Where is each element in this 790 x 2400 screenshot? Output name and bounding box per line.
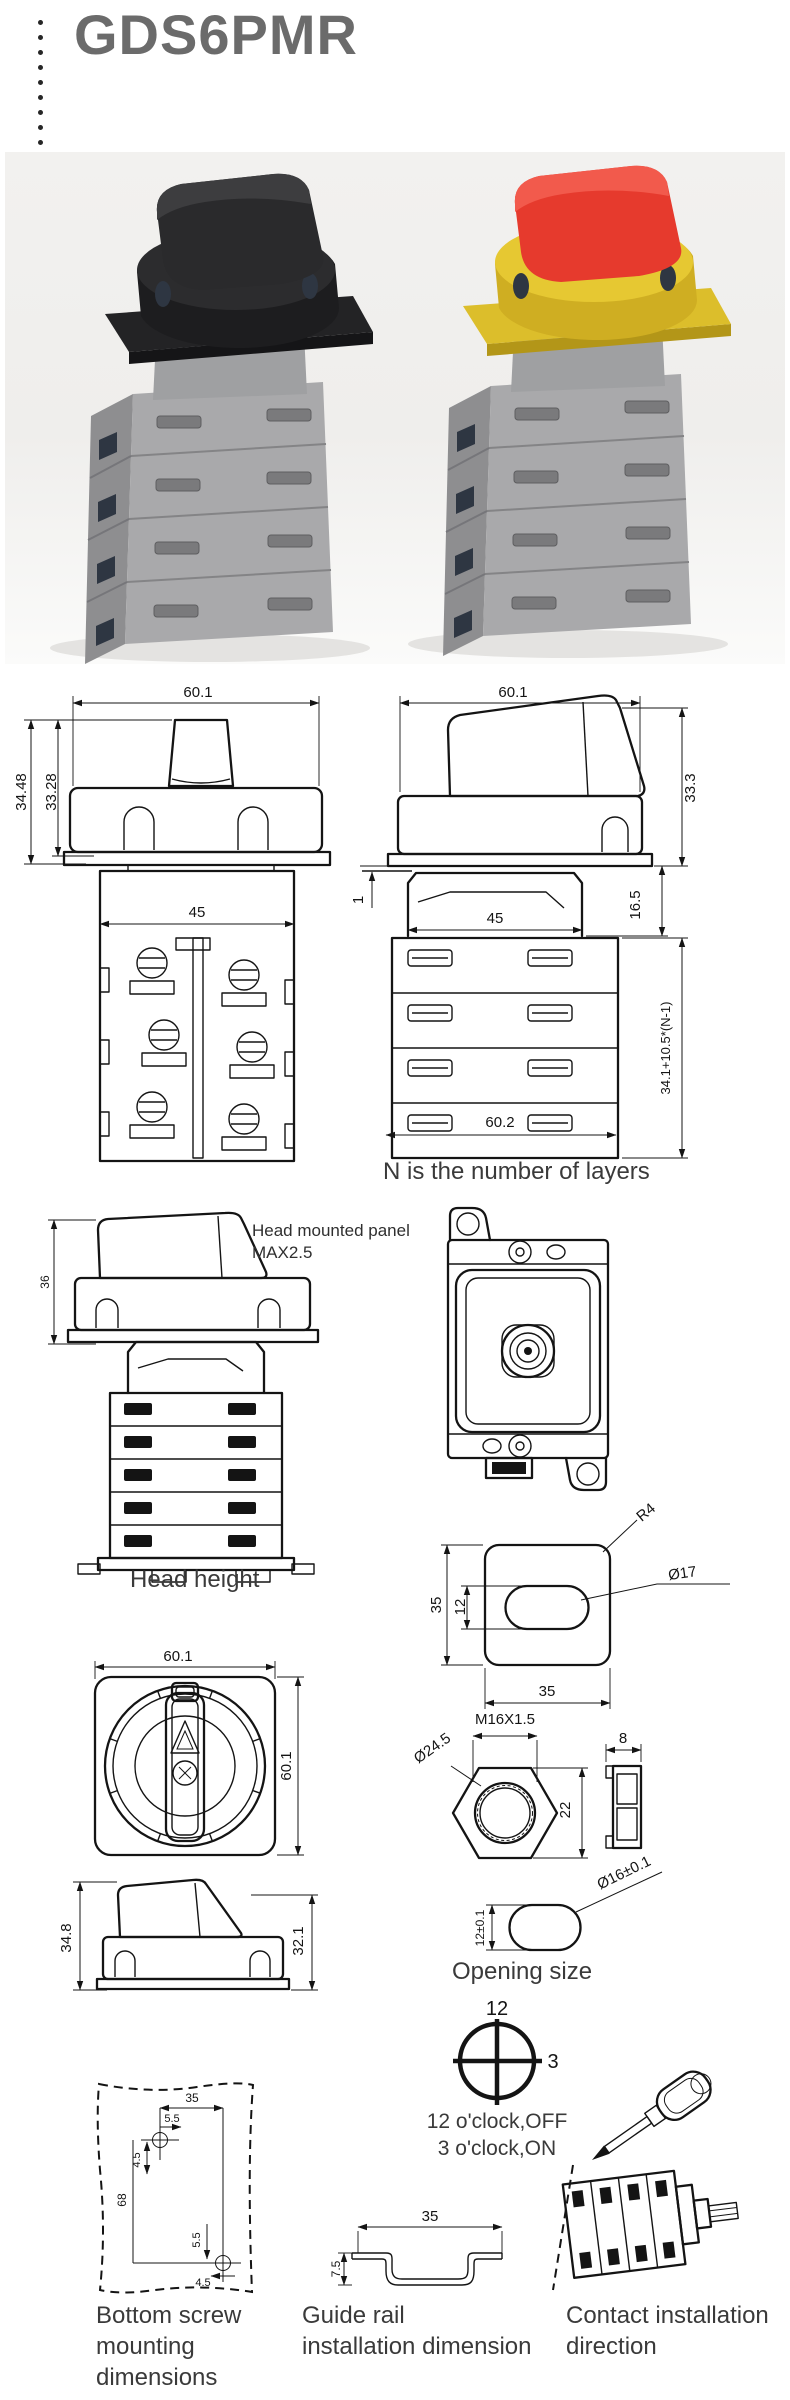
dim-nut-flats: 22 — [557, 1802, 574, 1819]
switch-body-side — [563, 2164, 743, 2278]
dim-hole-height: 12 — [452, 1599, 469, 1616]
dim-bs-35: 35 — [185, 2091, 199, 2105]
caption-contact: Contact installation direction — [566, 2300, 769, 2362]
dim-rail-width: 35 — [422, 2208, 439, 2225]
dim-bs-68: 68 — [115, 2193, 129, 2207]
caption-contact-line1: Contact installation — [566, 2300, 769, 2331]
dim-nut-thickness: 8 — [619, 1730, 627, 1747]
note-layers: N is the number of layers — [383, 1156, 650, 1187]
dim-opening-diameter: Ø16±0.1 — [594, 1855, 653, 1893]
figure-contact-installation — [540, 2058, 790, 2303]
caption-rail-line1: Guide rail — [302, 2300, 531, 2331]
dim-stack-formula: 34.1+10.5*(N-1) — [658, 1002, 673, 1095]
figure-top-view: 60.1 60.1 — [55, 1645, 345, 1880]
dim-head-side-left: 34.8 — [58, 1923, 75, 1952]
dim-head-side-right: 32.1 — [290, 1926, 307, 1955]
caption-bs-line1: Bottom screw — [96, 2300, 241, 2331]
figure-panel-cutout: 35 12 35 R4 Ø17 — [425, 1498, 755, 1718]
dim-front-h-inner: 33.28 — [43, 773, 60, 811]
switch-red-handle — [408, 166, 731, 658]
caption-bs-line2: mounting — [96, 2331, 241, 2362]
figure-front-view: 60.1 34.48 33.28 45 — [12, 668, 362, 1168]
dim-side-width: 60.1 — [498, 684, 527, 701]
dim-corner-radius: R4 — [633, 1500, 659, 1525]
dim-front-h-outer: 34.48 — [13, 773, 30, 811]
dim-top-height: 60.1 — [278, 1751, 295, 1780]
dim-front-width: 60.1 — [183, 684, 212, 701]
dim-neck-height: 16.5 — [627, 890, 644, 919]
figure-back-view — [428, 1202, 648, 1502]
figure-head-side: 34.8 32.1 — [45, 1865, 345, 2000]
figure-guide-rail: 35 7.5 — [330, 2195, 560, 2295]
dim-bs-top-offset: 5.5 — [164, 2113, 179, 2125]
caption-head-height: Head height — [130, 1564, 259, 1595]
dim-opening-height: 12±0.1 — [473, 1909, 487, 1946]
clock-label-12: 12 — [486, 1998, 508, 2020]
note-line-1: Head mounted panel — [252, 1220, 410, 1242]
caption-bs-line3: dimensions — [96, 2362, 241, 2393]
dim-thread: M16X1.5 — [475, 1711, 535, 1728]
dim-bs-left-offset: 4.5 — [131, 2152, 143, 2167]
product-photo-render — [5, 152, 785, 664]
caption-contact-line2: direction — [566, 2331, 769, 2362]
note-line-2: MAX2.5 — [252, 1242, 410, 1264]
product-photo — [5, 152, 785, 664]
page-title: GDS6PMR — [74, 2, 358, 67]
screwdriver-icon — [582, 2064, 719, 2174]
dim-head-height: 33.3 — [682, 773, 699, 802]
dim-nut-od: Ø24.5 — [411, 1730, 454, 1767]
caption-guide-rail: Guide rail installation dimension — [302, 2300, 531, 2362]
figure-bottom-screw: 35 68 5.5 4.5 5.5 4.5 — [85, 2070, 285, 2302]
switch-black-handle — [50, 174, 373, 664]
dim-base-width: 60.2 — [485, 1114, 514, 1131]
dim-side-body: 45 — [487, 910, 504, 927]
dim-panel-thickness: 1 — [350, 896, 367, 904]
dim-hole-diameter: Ø17 — [667, 1563, 697, 1584]
caption-opening-size: Opening size — [452, 1956, 592, 1987]
dim-top-width: 60.1 — [163, 1648, 192, 1665]
dim-bs-bottom-edge: 4.5 — [195, 2277, 210, 2289]
figure-nut: M16X1.5 Ø24.5 22 8 — [395, 1698, 695, 1873]
datasheet-page: GDS6PMR — [0, 0, 790, 2400]
decorative-dots — [38, 20, 43, 145]
figure-opening-size: 12±0.1 Ø16±0.1 — [430, 1855, 740, 1960]
figure-head-height: 36 — [40, 1210, 340, 1600]
dim-cutout-height: 35 — [428, 1597, 445, 1614]
dim-bs-bottom-offset: 5.5 — [191, 2232, 203, 2247]
caption-rail-line2: installation dimension — [302, 2331, 531, 2362]
caption-bottom-screw: Bottom screw mounting dimensions — [96, 2300, 241, 2393]
dim-head-36: 36 — [40, 1275, 52, 1289]
dim-rail-height: 7.5 — [330, 2260, 343, 2277]
note-head-mounted-panel: Head mounted panel MAX2.5 — [252, 1220, 410, 1264]
figure-side-view: 60.1 1 33.3 45 16.5 — [350, 668, 780, 1213]
dim-front-body: 45 — [189, 904, 206, 921]
